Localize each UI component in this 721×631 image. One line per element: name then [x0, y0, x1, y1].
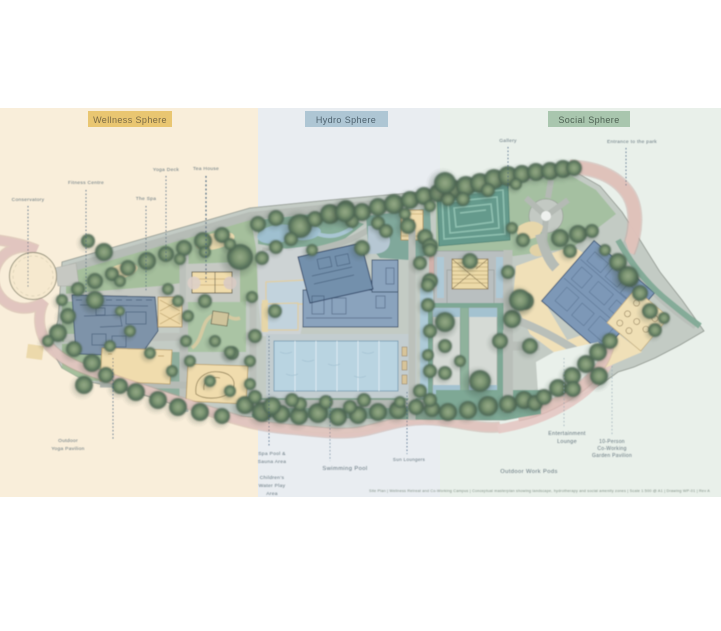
svg-text:The Spa: The Spa: [136, 196, 157, 202]
svg-text:Sun Loungers: Sun Loungers: [393, 457, 426, 462]
svg-text:Garden Pavilion: Garden Pavilion: [592, 453, 632, 459]
svg-text:Spa Pool &: Spa Pool &: [258, 451, 286, 457]
svg-text:Yoga Pavilion: Yoga Pavilion: [51, 446, 84, 452]
svg-text:Gallery: Gallery: [499, 138, 517, 144]
svg-text:Swimming Pool: Swimming Pool: [322, 466, 367, 472]
svg-text:Social Sphere: Social Sphere: [558, 115, 619, 125]
svg-text:10-Person: 10-Person: [599, 439, 625, 445]
svg-text:Wellness Sphere: Wellness Sphere: [93, 115, 167, 125]
svg-text:Tea House: Tea House: [193, 166, 219, 172]
svg-text:Lounge: Lounge: [557, 439, 577, 445]
svg-text:Outdoor: Outdoor: [58, 438, 78, 444]
svg-text:Site Plan | Wellness Retreat a: Site Plan | Wellness Retreat and Co-Work…: [369, 488, 710, 493]
svg-text:Area: Area: [266, 491, 278, 497]
svg-text:Water Play: Water Play: [259, 483, 286, 489]
svg-text:Children's: Children's: [260, 475, 285, 481]
svg-text:Hydro Sphere: Hydro Sphere: [316, 115, 376, 125]
svg-text:Entertainment: Entertainment: [548, 431, 586, 437]
svg-text:Entrance to the park: Entrance to the park: [607, 139, 657, 145]
svg-text:Sauna Area: Sauna Area: [258, 459, 287, 465]
svg-text:Conservatory: Conservatory: [12, 197, 45, 203]
svg-text:Outdoor Work Pods: Outdoor Work Pods: [500, 469, 558, 475]
svg-text:Yoga Deck: Yoga Deck: [153, 167, 179, 173]
svg-text:Co-Working: Co-Working: [597, 446, 626, 452]
svg-text:Fitness Centre: Fitness Centre: [68, 180, 104, 186]
